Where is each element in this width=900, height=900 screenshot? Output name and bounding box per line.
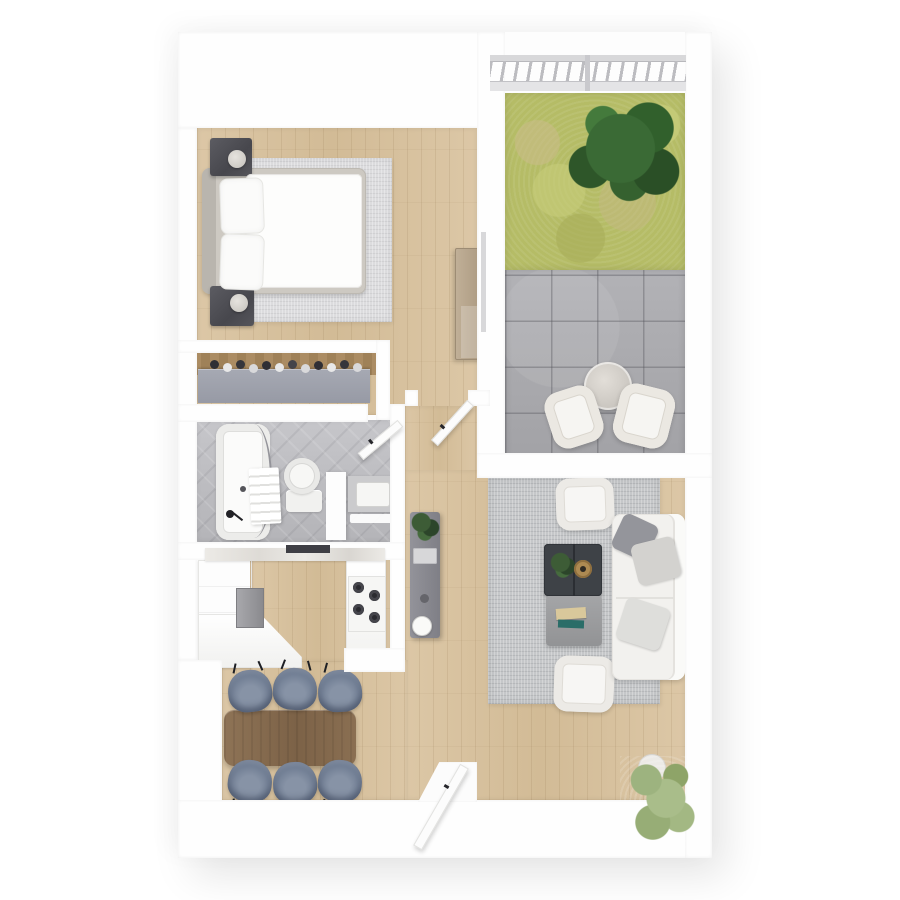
brass-tray (574, 560, 592, 578)
wall-closet-top (178, 340, 390, 353)
hob (348, 576, 386, 632)
hall-door-handle (440, 424, 446, 430)
oven (236, 588, 264, 628)
book-bottom (558, 620, 584, 629)
wall-kitchen-bottom-stub (344, 648, 405, 672)
burner-2 (369, 590, 380, 601)
book-top (556, 607, 587, 620)
hanging-clothes (210, 360, 219, 369)
console-knob (420, 594, 429, 603)
dining-table (224, 710, 356, 766)
armchair-south (553, 655, 615, 713)
table-lamp-bottom (230, 294, 248, 312)
dining-chair-5 (272, 761, 318, 805)
balcony-railing (490, 55, 686, 91)
table-lamp-top (228, 150, 246, 168)
dining-chair-3 (317, 669, 363, 713)
wall-left-upper (178, 128, 197, 660)
railing-center-post (585, 55, 590, 91)
sofa-seam (616, 597, 674, 599)
wall-left-lower (178, 660, 222, 810)
toilet-bowl (284, 458, 320, 494)
bath-mat (350, 514, 392, 523)
towel-ladder (249, 467, 282, 524)
cooker-hood-strip (286, 545, 330, 553)
bed-pillow-top (219, 177, 265, 235)
bed-pillow-bottom (219, 233, 265, 291)
console-plant (406, 508, 444, 544)
burner-1 (353, 582, 364, 593)
bed-headboard (202, 168, 216, 294)
wall-balcony-bottom (477, 453, 712, 478)
wall-right (685, 32, 712, 858)
burner-4 (369, 612, 380, 623)
balcony-sliding-door (481, 232, 486, 332)
wall-bath-kitchen-right (390, 404, 405, 672)
bathroom-partition (326, 472, 346, 540)
closet-unit (198, 369, 370, 403)
bathtub-drain (240, 486, 246, 492)
wall-bathroom-top (178, 404, 368, 422)
floor-plan-canvas (0, 0, 900, 900)
balcony-tree (560, 96, 686, 210)
burner-3 (353, 604, 364, 615)
wall-hall-stub-left (405, 390, 418, 406)
wall-closet-right (376, 340, 390, 420)
console-kettle (412, 616, 432, 636)
corner-plant (620, 756, 702, 848)
tray-dish (580, 566, 586, 572)
dining-chair-2 (272, 667, 318, 711)
armchair-north (555, 477, 615, 531)
coffee-table-plant (550, 552, 576, 578)
sink-basin (356, 482, 390, 507)
wall-top-block (178, 32, 490, 128)
console-tray (413, 548, 437, 564)
bathroom-door-handle (368, 439, 374, 445)
